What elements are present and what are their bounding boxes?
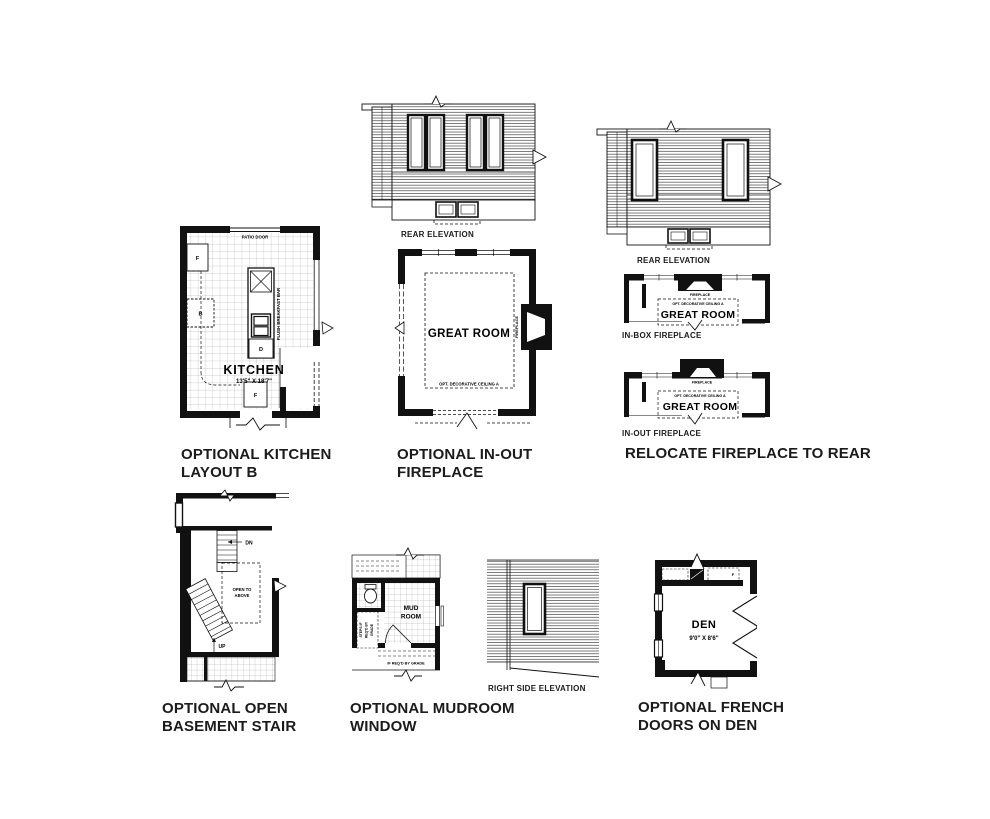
window xyxy=(722,274,752,281)
wall xyxy=(765,274,770,323)
basement-stair-caption: OPTIONAL OPEN BASEMENT STAIR xyxy=(162,700,296,735)
toilet xyxy=(365,585,377,604)
window xyxy=(655,640,663,657)
den-caption-line2: DOORS ON DEN xyxy=(638,717,784,735)
oven-label: B xyxy=(199,312,203,318)
rear-elevation-1-drawing xyxy=(360,95,545,227)
stair-curved-flight xyxy=(186,579,233,641)
wall xyxy=(655,670,757,677)
wall xyxy=(529,350,536,416)
in-out-fireplace-drawing: FIREPLACE OPT. DECORATIVE CEILING A GREA… xyxy=(622,358,772,424)
kitchen-plan-drawing: D FLUSH BREAKFAST BAR F B F PATIO DOOR K… xyxy=(176,222,334,434)
wall xyxy=(352,578,440,583)
wall xyxy=(176,493,183,503)
steps-note-line3: GRADE xyxy=(370,623,374,636)
wall xyxy=(655,580,743,586)
opening xyxy=(433,411,498,415)
window-pair-right xyxy=(467,115,503,170)
den-caption: OPTIONAL FRENCH DOORS ON DEN xyxy=(638,699,784,734)
kitchen-caption-line2: LAYOUT B xyxy=(181,464,331,482)
wall xyxy=(655,560,757,567)
appliance-label: F xyxy=(732,572,735,577)
room-name: KITCHEN xyxy=(223,363,284,377)
rear-elevation-2-caption: REAR ELEVATION xyxy=(637,256,710,265)
window xyxy=(314,260,319,330)
wall xyxy=(529,249,536,304)
room-line2: ROOM xyxy=(401,614,421,621)
break-line-icon xyxy=(274,580,286,592)
great-room-caption-line2: FIREPLACE xyxy=(397,464,532,482)
ceiling-note: OPT. DECORATIVE CEILING A xyxy=(674,394,726,398)
window xyxy=(176,503,183,527)
stoop xyxy=(711,677,727,688)
break-line-icon xyxy=(212,490,242,501)
great-room-plan-drawing: FIREPLACE GREAT ROOM OPT. DECORATIVE CEI… xyxy=(395,246,553,432)
fireplace xyxy=(678,274,722,291)
window xyxy=(314,362,319,406)
fireplace xyxy=(521,304,552,350)
wall-stub xyxy=(204,657,208,681)
porch-floor xyxy=(187,657,275,681)
window xyxy=(642,372,672,379)
room-name: GREAT ROOM xyxy=(428,328,510,340)
wall xyxy=(272,411,320,418)
wall xyxy=(624,274,629,323)
room-name: GREAT ROOM xyxy=(661,309,736,321)
den-caption-line1: OPTIONAL FRENCH xyxy=(638,699,784,717)
window-well xyxy=(666,245,712,249)
grade-note: IF REQ'D BY GRADE xyxy=(387,662,425,666)
great-room-caption: OPTIONAL IN-OUT FIREPLACE xyxy=(397,446,532,481)
wall xyxy=(357,608,385,612)
wall xyxy=(498,409,536,416)
window xyxy=(422,249,455,256)
break-line-icon xyxy=(688,413,702,424)
wall xyxy=(313,330,320,346)
steps-note-line1: STEPS IF xyxy=(359,622,363,637)
window-well xyxy=(434,220,480,224)
break-line-icon xyxy=(394,670,422,681)
french-door-leaf xyxy=(733,628,757,658)
basement-stair-drawing: DN UP OPEN TO ABOVE xyxy=(162,490,302,692)
kitchen-caption-line1: OPTIONAL KITCHEN xyxy=(181,446,331,464)
wall xyxy=(313,226,320,260)
room-name: DEN xyxy=(692,619,717,631)
window xyxy=(477,249,510,256)
window xyxy=(655,594,663,611)
break-line-icon xyxy=(688,320,702,330)
den-drawing: F DEN 9'0" X 8'6" xyxy=(653,552,777,690)
ceiling-note: OPT. DECORATIVE CEILING A xyxy=(439,382,499,387)
up-label: UP xyxy=(219,644,227,650)
break-line-icon xyxy=(236,418,280,430)
break-line-icon xyxy=(214,680,244,691)
room-line1: MUD xyxy=(404,605,419,612)
wall xyxy=(180,226,230,233)
wall xyxy=(183,526,272,531)
wall xyxy=(765,372,770,417)
grade-line xyxy=(510,668,599,677)
breakfast-bar-label: FLUSH BREAKFAST BAR xyxy=(276,287,281,340)
wall-stub xyxy=(642,382,646,402)
down-label: DN xyxy=(245,541,253,547)
rear-elevation-2-drawing xyxy=(595,120,780,254)
stair-upper-flight xyxy=(217,531,237,563)
floorplan-sheet: REAR ELEVATION R xyxy=(0,0,990,819)
in-out-fireplace-label: IN-OUT FIREPLACE xyxy=(622,429,701,438)
grade-steps xyxy=(378,651,435,656)
mudroom-window xyxy=(435,606,444,626)
break-line-icon xyxy=(322,322,333,334)
counter-outline xyxy=(662,569,688,580)
window-left xyxy=(632,140,657,200)
wall-post xyxy=(655,660,665,677)
dishwasher-label: D xyxy=(259,347,263,353)
wall xyxy=(398,409,433,416)
fireplace-label: FIREPLACE xyxy=(514,316,519,338)
open-above-line1: OPEN TO xyxy=(233,587,253,592)
mudroom-caption-line2: WINDOW xyxy=(350,718,515,736)
patio-door-label: PATIO DOOR xyxy=(242,235,269,240)
door-opening xyxy=(385,643,411,648)
mudroom-drawing: MUD ROOM STEPS IF REQ'D BY GRADE IF REQ'… xyxy=(348,548,462,686)
wall xyxy=(352,578,357,648)
appliance-outline xyxy=(708,568,739,581)
relocate-fireplace-caption: RELOCATE FIREPLACE TO REAR xyxy=(625,445,871,463)
window xyxy=(722,372,752,379)
break-line-icon xyxy=(768,177,781,191)
window-right xyxy=(723,140,748,200)
ceiling-note: OPT. DECORATIVE CEILING A xyxy=(672,302,724,306)
wall-stub xyxy=(280,387,286,411)
kitchen-caption: OPTIONAL KITCHEN LAYOUT B xyxy=(181,446,331,481)
basement-stair-caption-line2: BASEMENT STAIR xyxy=(162,718,296,736)
fireplace xyxy=(680,359,724,378)
window-pair-left xyxy=(408,115,444,170)
wall xyxy=(180,226,187,418)
french-door-leaf xyxy=(733,596,757,626)
basement-stair-caption-line1: OPTIONAL OPEN xyxy=(162,700,296,718)
open-above-line2: ABOVE xyxy=(235,593,250,598)
break-line-icon xyxy=(533,150,546,164)
window xyxy=(644,274,674,281)
room-name: GREAT ROOM xyxy=(663,401,738,413)
fireplace-label: FIREPLACE xyxy=(692,381,713,385)
right-side-elevation-drawing xyxy=(487,558,601,684)
wall xyxy=(398,249,536,256)
great-room-caption-line1: OPTIONAL IN-OUT xyxy=(397,446,532,464)
room-dims: 13'5" X 18'7" xyxy=(236,379,272,385)
wall xyxy=(180,411,240,418)
wall xyxy=(180,652,279,657)
wall-stub xyxy=(642,284,646,308)
steps-note-line2: REQ'D BY xyxy=(365,621,369,638)
stair-landing xyxy=(217,563,237,572)
wall xyxy=(655,560,662,677)
right-side-elevation-caption: RIGHT SIDE ELEVATION xyxy=(488,684,586,693)
mudroom-caption: OPTIONAL MUDROOM WINDOW xyxy=(350,700,515,735)
break-line-icon xyxy=(457,413,477,429)
wall xyxy=(180,652,187,682)
fireplace-label: FIREPLACE xyxy=(690,293,711,297)
room-dims: 9'0" X 8'6" xyxy=(689,636,718,642)
wall xyxy=(381,583,385,612)
patio-door xyxy=(230,228,280,232)
rear-elevation-1-caption: REAR ELEVATION xyxy=(401,230,474,239)
in-box-fireplace-label: IN-BOX FIREPLACE xyxy=(622,331,702,340)
in-box-fireplace-drawing: FIREPLACE OPT. DECORATIVE CEILING A GREA… xyxy=(622,268,772,330)
mudroom-caption-line1: OPTIONAL MUDROOM xyxy=(350,700,515,718)
wall xyxy=(624,372,629,417)
